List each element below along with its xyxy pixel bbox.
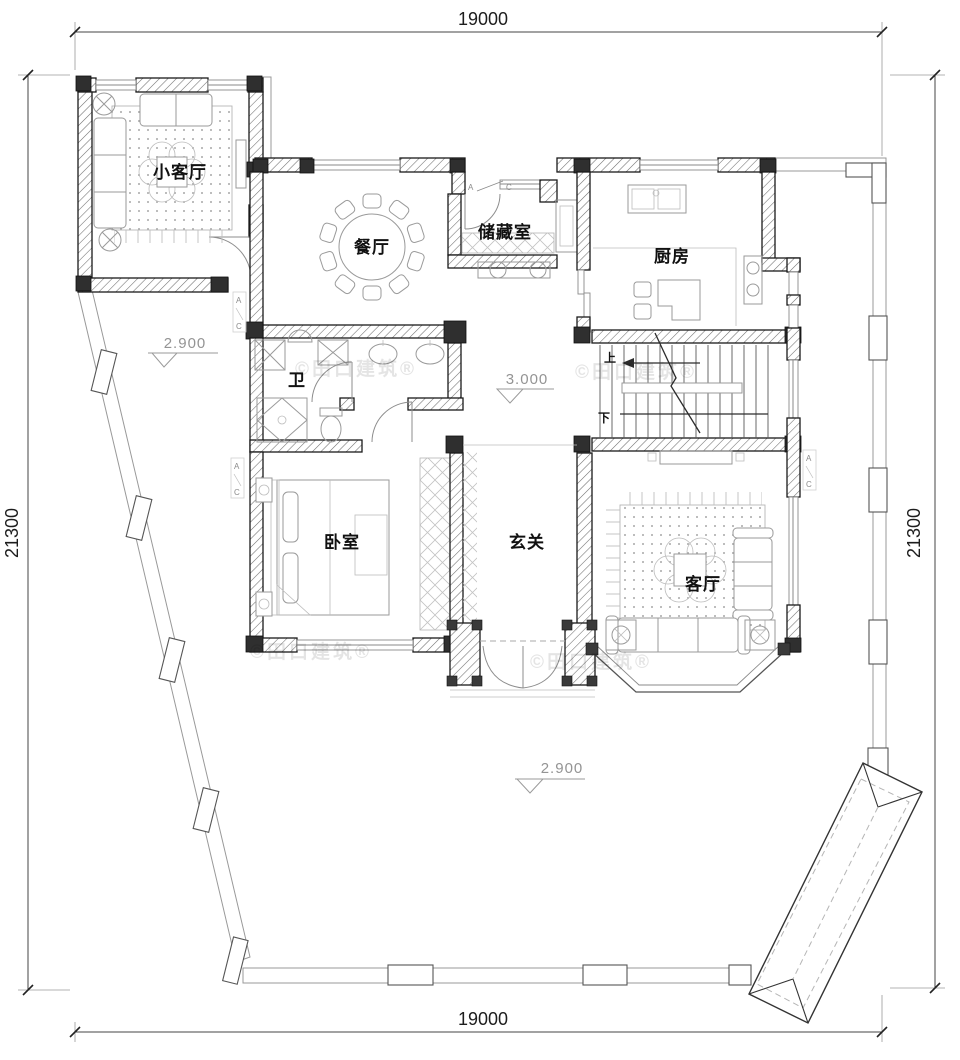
- label-kitchen: 厨房: [654, 246, 690, 266]
- stairs: 上 下: [574, 327, 801, 452]
- gate-hip-roof: [749, 763, 922, 1023]
- kitchen-sink: [628, 185, 686, 213]
- dim-bottom: 19000: [458, 1009, 508, 1029]
- north-wall: [253, 158, 776, 173]
- east-wall: [785, 258, 801, 652]
- svg-text:©田口建筑®: ©田口建筑®: [295, 357, 417, 380]
- room-kitchen: 厨房: [577, 172, 800, 332]
- label-storage: 储藏室: [478, 222, 532, 242]
- room-dining: 餐厅: [250, 172, 425, 325]
- dim-right: 21300: [904, 508, 924, 558]
- room-storage: 储藏室 A C: [448, 172, 577, 278]
- room-bedroom: 卧室: [246, 452, 461, 652]
- label-foyer: 玄关: [509, 532, 545, 552]
- floor-plan-drawing: 小客厅 储藏室 A: [0, 0, 960, 1060]
- kitchen-table: [634, 280, 700, 320]
- room-small-living: 小客厅: [76, 76, 263, 292]
- label-bedroom: 卧室: [324, 532, 360, 552]
- section-marker-top: A C: [468, 181, 512, 192]
- label-dining: 餐厅: [354, 237, 390, 257]
- elevation-bottom: 2.900: [541, 760, 584, 777]
- floor-plan-page: 小客厅 储藏室 A: [0, 0, 960, 1060]
- dim-top: 19000: [458, 9, 508, 29]
- elevation-indoor: 3.000: [506, 371, 549, 388]
- label-small-living: 小客厅: [153, 162, 207, 182]
- label-stair-down: 下: [598, 411, 610, 425]
- kitchen-stove: [744, 256, 762, 304]
- toilet: [320, 408, 342, 442]
- svg-text:C: C: [506, 183, 512, 192]
- shower: [257, 398, 307, 442]
- svg-text:A: A: [234, 462, 240, 471]
- dim-left: 21300: [2, 508, 22, 558]
- svg-text:C: C: [234, 488, 240, 497]
- bed: [256, 478, 389, 616]
- elevation-left: 2.900: [164, 335, 207, 352]
- svg-text:©田口建筑®: ©田口建筑®: [575, 360, 697, 383]
- svg-text:©田口建筑®: ©田口建筑®: [250, 640, 372, 663]
- svg-text:C: C: [806, 480, 812, 489]
- label-living: 客厅: [684, 574, 721, 594]
- svg-text:A: A: [806, 454, 812, 463]
- svg-text:A: A: [468, 183, 474, 192]
- svg-text:©田口建筑®: ©田口建筑®: [530, 650, 652, 673]
- room-bath: 卫: [246, 321, 466, 452]
- section-markers-side: A C A C A C: [231, 292, 816, 498]
- svg-text:A: A: [236, 296, 242, 305]
- svg-text:C: C: [236, 322, 242, 331]
